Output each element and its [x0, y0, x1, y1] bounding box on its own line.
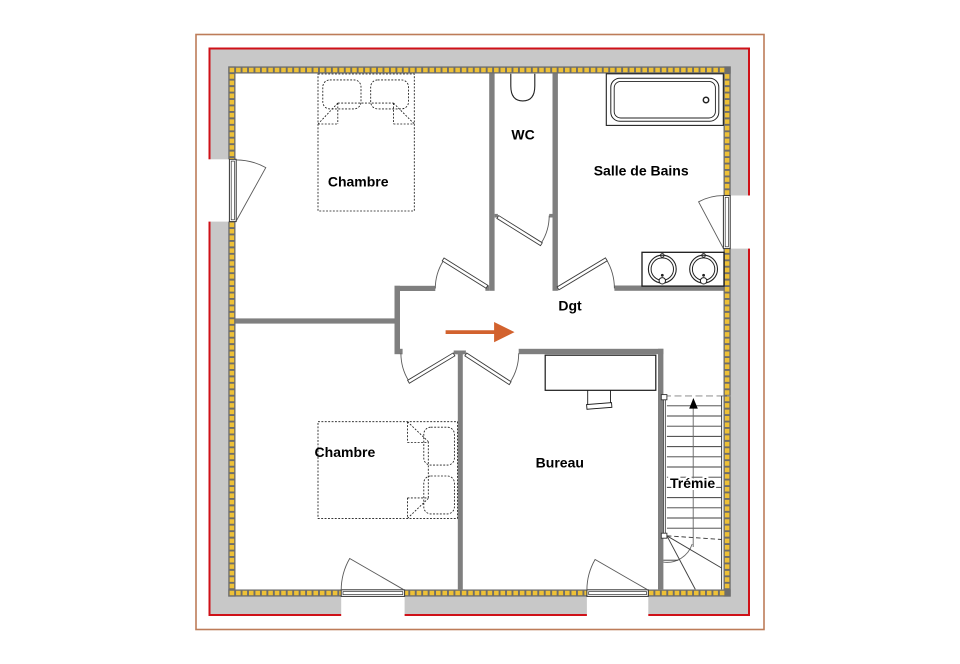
svg-text:Chambre: Chambre: [328, 173, 389, 189]
svg-text:Bureau: Bureau: [536, 455, 584, 471]
svg-text:Salle de Bains: Salle de Bains: [594, 162, 689, 178]
svg-text:Trémie: Trémie: [670, 475, 715, 491]
svg-text:Dgt: Dgt: [558, 298, 582, 314]
svg-text:WC: WC: [511, 127, 534, 143]
svg-text:Chambre: Chambre: [315, 444, 376, 460]
